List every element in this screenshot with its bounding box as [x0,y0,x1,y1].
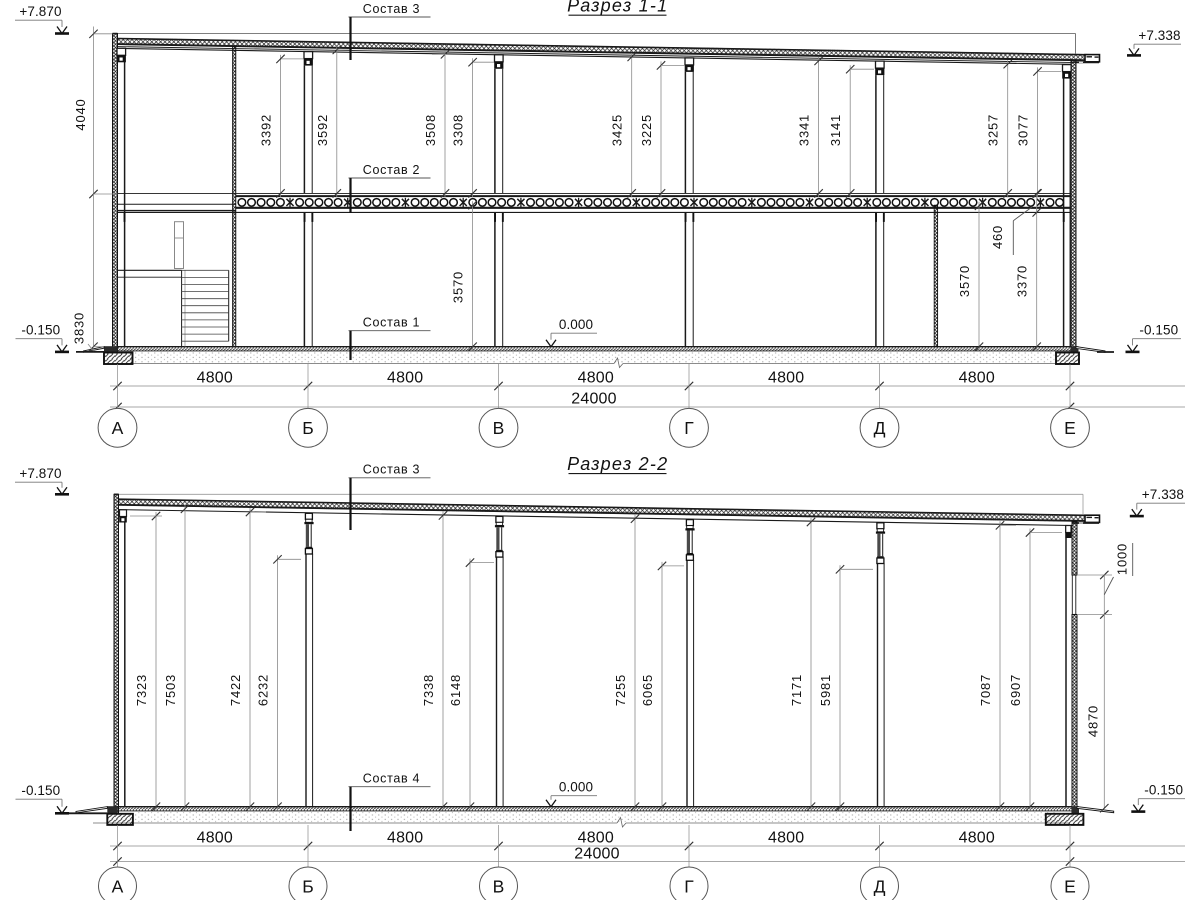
svg-text:3508: 3508 [423,114,438,146]
svg-text:Состав 3: Состав 3 [363,2,420,16]
svg-text:+7.338: +7.338 [1142,487,1184,502]
svg-text:3830: 3830 [72,312,87,344]
svg-text:6907: 6907 [1008,674,1023,706]
svg-text:4800: 4800 [578,829,614,846]
svg-text:0.000: 0.000 [559,780,593,795]
svg-text:-0.150: -0.150 [21,783,60,798]
svg-text:4800: 4800 [959,369,995,386]
svg-text:+7.338: +7.338 [1138,28,1180,43]
svg-text:4040: 4040 [73,98,88,130]
svg-text:4800: 4800 [197,829,233,846]
svg-text:Б: Б [302,876,313,896]
svg-text:3308: 3308 [451,114,466,146]
svg-text:Разрез 1-1: Разрез 1-1 [567,0,668,16]
svg-text:4800: 4800 [387,369,423,386]
svg-text:7171: 7171 [789,674,804,706]
svg-text:7503: 7503 [163,674,178,706]
svg-text:В: В [493,876,505,896]
svg-text:3370: 3370 [1015,265,1030,297]
svg-text:1000: 1000 [1115,543,1130,575]
svg-text:-0.150: -0.150 [21,323,60,338]
svg-text:4870: 4870 [1086,705,1101,737]
svg-text:Разрез 2-2: Разрез 2-2 [567,454,668,474]
svg-text:-0.150: -0.150 [1144,783,1183,798]
svg-text:Состав 4: Состав 4 [363,772,420,786]
svg-text:Е: Е [1064,418,1076,438]
svg-text:7087: 7087 [978,674,993,706]
svg-text:4800: 4800 [768,369,804,386]
svg-text:4800: 4800 [387,829,423,846]
svg-text:4800: 4800 [578,369,614,386]
svg-text:Е: Е [1064,876,1076,896]
svg-text:7255: 7255 [613,674,628,706]
svg-text:+7.870: +7.870 [19,466,61,481]
svg-text:3225: 3225 [639,114,654,146]
svg-text:Д: Д [874,418,886,438]
svg-text:4800: 4800 [197,369,233,386]
svg-text:3077: 3077 [1016,114,1031,146]
svg-text:А: А [112,876,124,896]
svg-text:3592: 3592 [315,114,330,146]
svg-text:-0.150: -0.150 [1139,323,1178,338]
svg-text:3257: 3257 [986,114,1001,146]
svg-text:А: А [112,418,124,438]
svg-text:Б: Б [302,418,313,438]
svg-text:6148: 6148 [448,674,463,706]
svg-text:460: 460 [990,225,1005,249]
svg-text:3141: 3141 [828,114,843,146]
svg-text:6232: 6232 [256,674,271,706]
svg-text:7323: 7323 [134,674,149,706]
svg-text:Состав 2: Состав 2 [363,163,420,177]
svg-text:Г: Г [684,876,694,896]
svg-text:24000: 24000 [574,845,620,862]
svg-text:Состав 1: Состав 1 [363,316,420,330]
svg-text:7338: 7338 [421,674,436,706]
svg-text:7422: 7422 [228,674,243,706]
svg-text:3570: 3570 [957,265,972,297]
svg-text:3392: 3392 [259,114,274,146]
svg-text:+7.870: +7.870 [19,4,61,19]
svg-text:В: В [493,418,505,438]
svg-text:6065: 6065 [640,674,655,706]
svg-text:3570: 3570 [451,271,466,303]
svg-text:3425: 3425 [610,114,625,146]
svg-text:4800: 4800 [959,829,995,846]
svg-text:Г: Г [684,418,694,438]
svg-text:24000: 24000 [571,391,617,408]
svg-text:3341: 3341 [797,114,812,146]
svg-text:Состав 3: Состав 3 [363,463,420,477]
svg-text:4800: 4800 [768,829,804,846]
svg-text:Д: Д [874,876,886,896]
svg-text:5981: 5981 [818,674,833,706]
svg-text:0.000: 0.000 [559,317,593,332]
